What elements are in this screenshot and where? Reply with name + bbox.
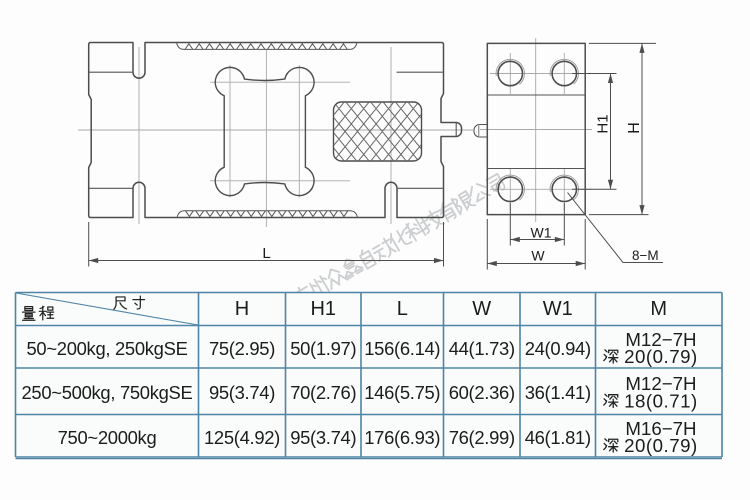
svg-text:76(2.99): 76(2.99) [449, 427, 515, 448]
svg-text:H1: H1 [310, 298, 336, 320]
svg-text:70(2.76): 70(2.76) [290, 382, 356, 403]
svg-text:36(1.41): 36(1.41) [525, 382, 591, 403]
svg-text:20(0.79): 20(0.79) [624, 346, 698, 367]
svg-text:250~500kg, 750kgSE: 250~500kg, 750kgSE [22, 382, 193, 403]
svg-text:46(1.81): 46(1.81) [525, 427, 591, 448]
svg-text:75(2.95): 75(2.95) [209, 338, 275, 359]
svg-text:W1: W1 [543, 298, 573, 320]
svg-text:95(3.74): 95(3.74) [290, 427, 356, 448]
svg-text:60(2.36): 60(2.36) [449, 382, 515, 403]
svg-text:W: W [531, 248, 545, 264]
svg-text:18(0.71): 18(0.71) [624, 391, 698, 412]
svg-text:W1: W1 [531, 225, 552, 241]
svg-text:M: M [650, 298, 667, 320]
svg-text:44(1.73): 44(1.73) [449, 338, 515, 359]
svg-text:20(0.79): 20(0.79) [624, 435, 698, 456]
svg-text:8−M: 8−M [632, 248, 659, 263]
svg-text:H: H [235, 298, 249, 320]
svg-text:H1: H1 [595, 114, 612, 133]
svg-text:L: L [262, 245, 270, 262]
svg-text:750~2000kg: 750~2000kg [58, 427, 157, 448]
svg-text:50~200kg, 250kgSE: 50~200kg, 250kgSE [26, 338, 187, 359]
svg-text:50(1.97): 50(1.97) [290, 338, 356, 359]
svg-text:125(4.92): 125(4.92) [204, 427, 280, 448]
svg-text:156(6.14): 156(6.14) [364, 338, 440, 359]
svg-text:95(3.74): 95(3.74) [209, 382, 275, 403]
svg-text:W: W [472, 298, 491, 320]
svg-text:L: L [397, 298, 408, 320]
svg-text:146(5.75): 146(5.75) [364, 382, 440, 403]
svg-text:176(6.93): 176(6.93) [364, 427, 440, 448]
svg-text:H: H [626, 122, 643, 134]
svg-text:24(0.94): 24(0.94) [525, 338, 591, 359]
